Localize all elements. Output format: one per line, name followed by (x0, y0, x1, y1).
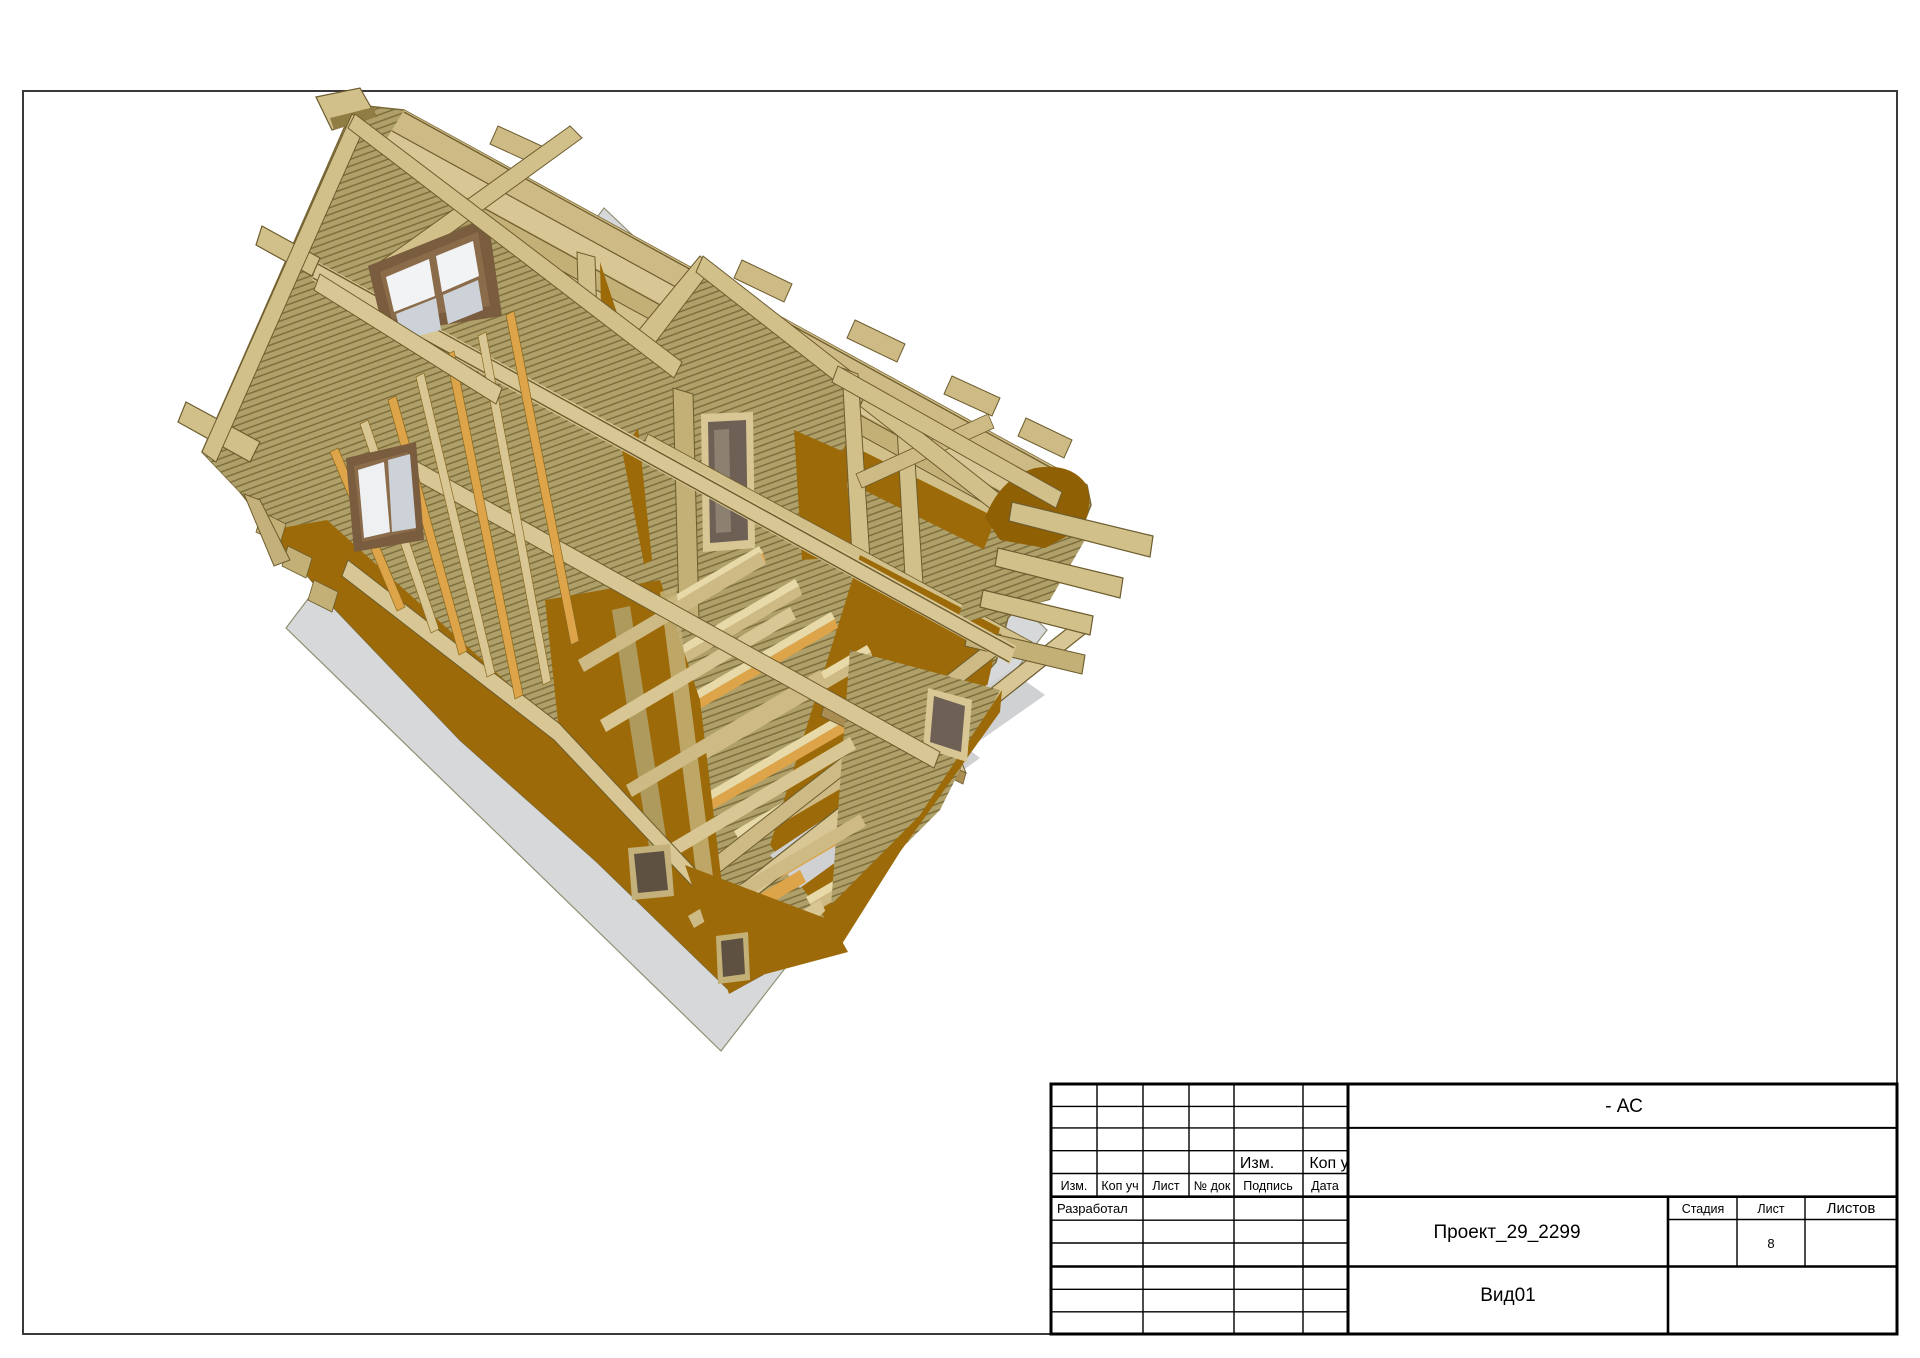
svg-text:Лист: Лист (1757, 1202, 1784, 1216)
svg-text:Разработал: Разработал (1057, 1201, 1128, 1216)
svg-text:Вид01: Вид01 (1480, 1285, 1536, 1306)
svg-text:- АС: - АС (1605, 1096, 1643, 1117)
svg-text:Лист: Лист (1152, 1179, 1179, 1193)
svg-text:№ док: № док (1194, 1179, 1231, 1193)
svg-text:Стадия: Стадия (1682, 1202, 1725, 1216)
svg-text:Подпись: Подпись (1243, 1179, 1292, 1193)
svg-text:Изм.: Изм. (1061, 1179, 1088, 1193)
svg-text:8: 8 (1767, 1236, 1774, 1251)
svg-text:Дата: Дата (1311, 1179, 1339, 1193)
svg-text:Изм.: Изм. (1240, 1155, 1274, 1172)
svg-text:Коп у: Коп у (1309, 1155, 1348, 1172)
svg-text:Листов: Листов (1827, 1200, 1876, 1217)
svg-text:Проект_29_2299: Проект_29_2299 (1433, 1222, 1580, 1243)
svg-text:Коп уч: Коп уч (1101, 1179, 1138, 1193)
